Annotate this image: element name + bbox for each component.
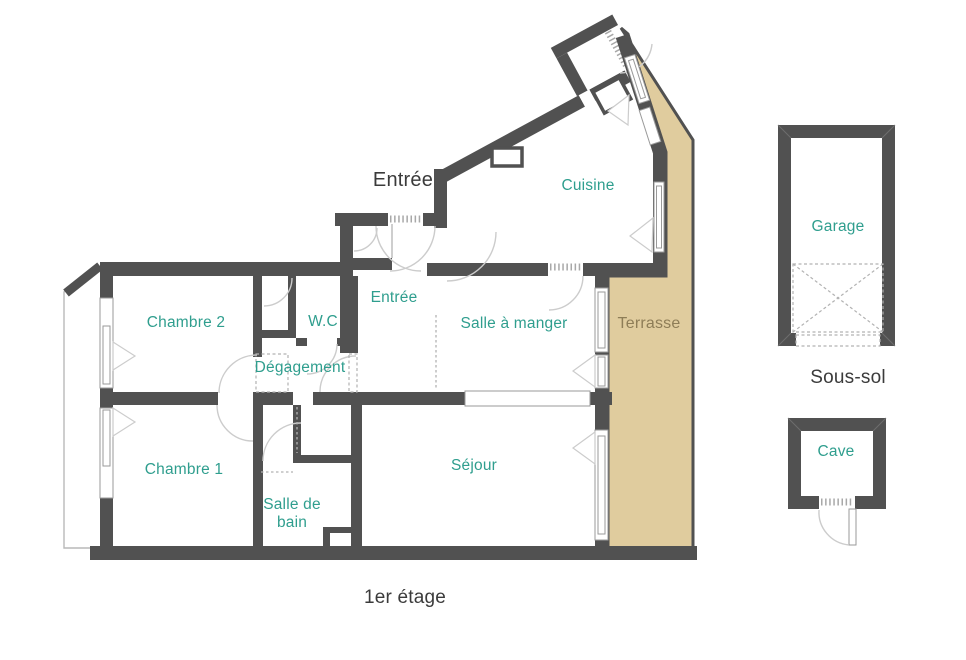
exterior-entrance-label: Entrée bbox=[373, 171, 433, 189]
cave-structure bbox=[788, 418, 886, 545]
large-opening bbox=[465, 391, 590, 406]
room-label-salle-de-bain: Salle de bain bbox=[263, 496, 321, 532]
room-label-chambre1: Chambre 1 bbox=[145, 461, 223, 479]
room-label-salle-a-manger: Salle à manger bbox=[460, 315, 567, 333]
room-label-garage: Garage bbox=[812, 218, 865, 236]
balcony-outline bbox=[64, 265, 100, 548]
room-label-chambre2: Chambre 2 bbox=[147, 314, 225, 332]
room-label-terrasse: Terrasse bbox=[618, 315, 681, 333]
room-label-wc: W.C bbox=[308, 313, 338, 331]
room-label-degagement: Dégagement bbox=[255, 359, 346, 377]
cave-door-leaf bbox=[849, 509, 856, 545]
room-label-cave: Cave bbox=[818, 443, 855, 461]
basement-title: Sous-sol bbox=[810, 369, 886, 387]
room-label-cuisine: Cuisine bbox=[561, 177, 614, 195]
room-label-sejour: Séjour bbox=[451, 457, 497, 475]
floor-title: 1er étage bbox=[364, 589, 446, 607]
doors bbox=[217, 219, 583, 461]
floorplan-canvas: Chambre 2 W.C Entrée Salle à manger Cuis… bbox=[0, 0, 966, 660]
room-label-entree: Entrée bbox=[371, 289, 418, 307]
